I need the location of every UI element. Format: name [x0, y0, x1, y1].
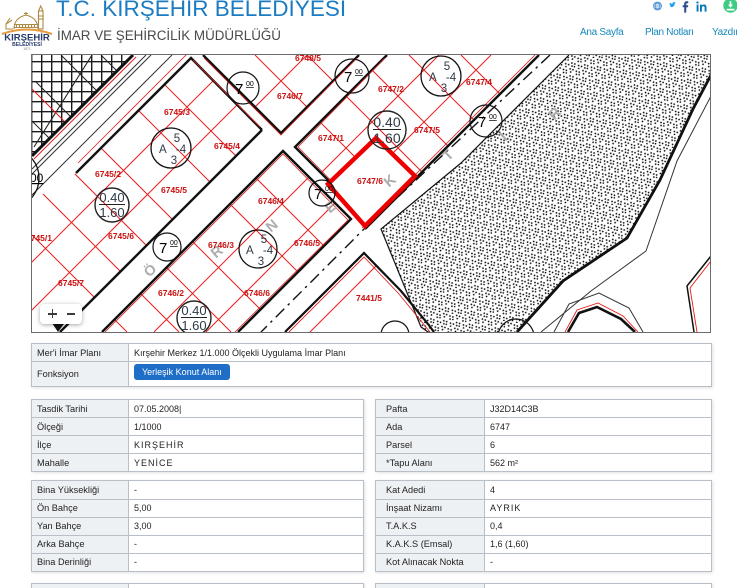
- svg-text:3: 3: [171, 155, 177, 167]
- svg-text:-4: -4: [446, 72, 457, 84]
- svg-text:00: 00: [32, 171, 44, 185]
- svg-text:6745/1: 6745/1: [32, 233, 52, 243]
- svg-text:00: 00: [246, 81, 254, 88]
- svg-text:00: 00: [170, 240, 178, 247]
- svg-text:6745/5: 6745/5: [161, 185, 187, 195]
- svg-text:0.40: 0.40: [181, 303, 206, 318]
- svg-text:6747/4: 6747/4: [466, 77, 492, 87]
- svg-text:6746/5: 6746/5: [294, 238, 320, 248]
- svg-text:6746/6: 6746/6: [244, 288, 270, 298]
- svg-text:7: 7: [235, 81, 243, 98]
- svg-text:00: 00: [355, 69, 363, 76]
- svg-text:00: 00: [489, 114, 497, 121]
- svg-text:3: 3: [441, 83, 447, 95]
- svg-text:6747/5: 6747/5: [414, 125, 440, 135]
- svg-text:6747/2: 6747/2: [378, 84, 404, 94]
- svg-text:6747/6: 6747/6: [357, 176, 383, 186]
- svg-text:7: 7: [314, 186, 322, 203]
- svg-text:0.40: 0.40: [373, 114, 400, 130]
- svg-text:6747/1: 6747/1: [318, 133, 344, 143]
- svg-text:6745/4: 6745/4: [214, 141, 240, 151]
- svg-text:-4: -4: [176, 144, 187, 156]
- svg-text:3: 3: [258, 256, 264, 268]
- svg-text:00: 00: [325, 186, 333, 193]
- svg-text:6746/7: 6746/7: [277, 91, 303, 101]
- svg-text:0.40: 0.40: [99, 190, 124, 205]
- svg-text:A: A: [429, 72, 437, 84]
- svg-text:6746/2: 6746/2: [158, 288, 184, 298]
- svg-text:7: 7: [478, 114, 486, 131]
- svg-text:6745/3: 6745/3: [164, 107, 190, 117]
- svg-text:6746/3: 6746/3: [208, 240, 234, 250]
- svg-text:6745/6: 6745/6: [108, 231, 134, 241]
- svg-text:1.60: 1.60: [373, 130, 400, 146]
- svg-text:6746/4: 6746/4: [258, 196, 284, 206]
- svg-text:7441/5: 7441/5: [356, 293, 382, 303]
- svg-text:A: A: [246, 245, 254, 257]
- svg-text:A: A: [159, 144, 167, 156]
- svg-text:1.60: 1.60: [99, 205, 124, 220]
- svg-text:6748/5: 6748/5: [295, 55, 321, 63]
- svg-text:6745/7: 6745/7: [58, 278, 84, 288]
- svg-text:1871: 1871: [23, 47, 31, 51]
- svg-text:1.60: 1.60: [181, 318, 206, 332]
- svg-text:7: 7: [344, 69, 352, 86]
- svg-text:7: 7: [159, 240, 167, 257]
- svg-text:6745/2: 6745/2: [95, 169, 121, 179]
- svg-text:-4: -4: [263, 245, 274, 257]
